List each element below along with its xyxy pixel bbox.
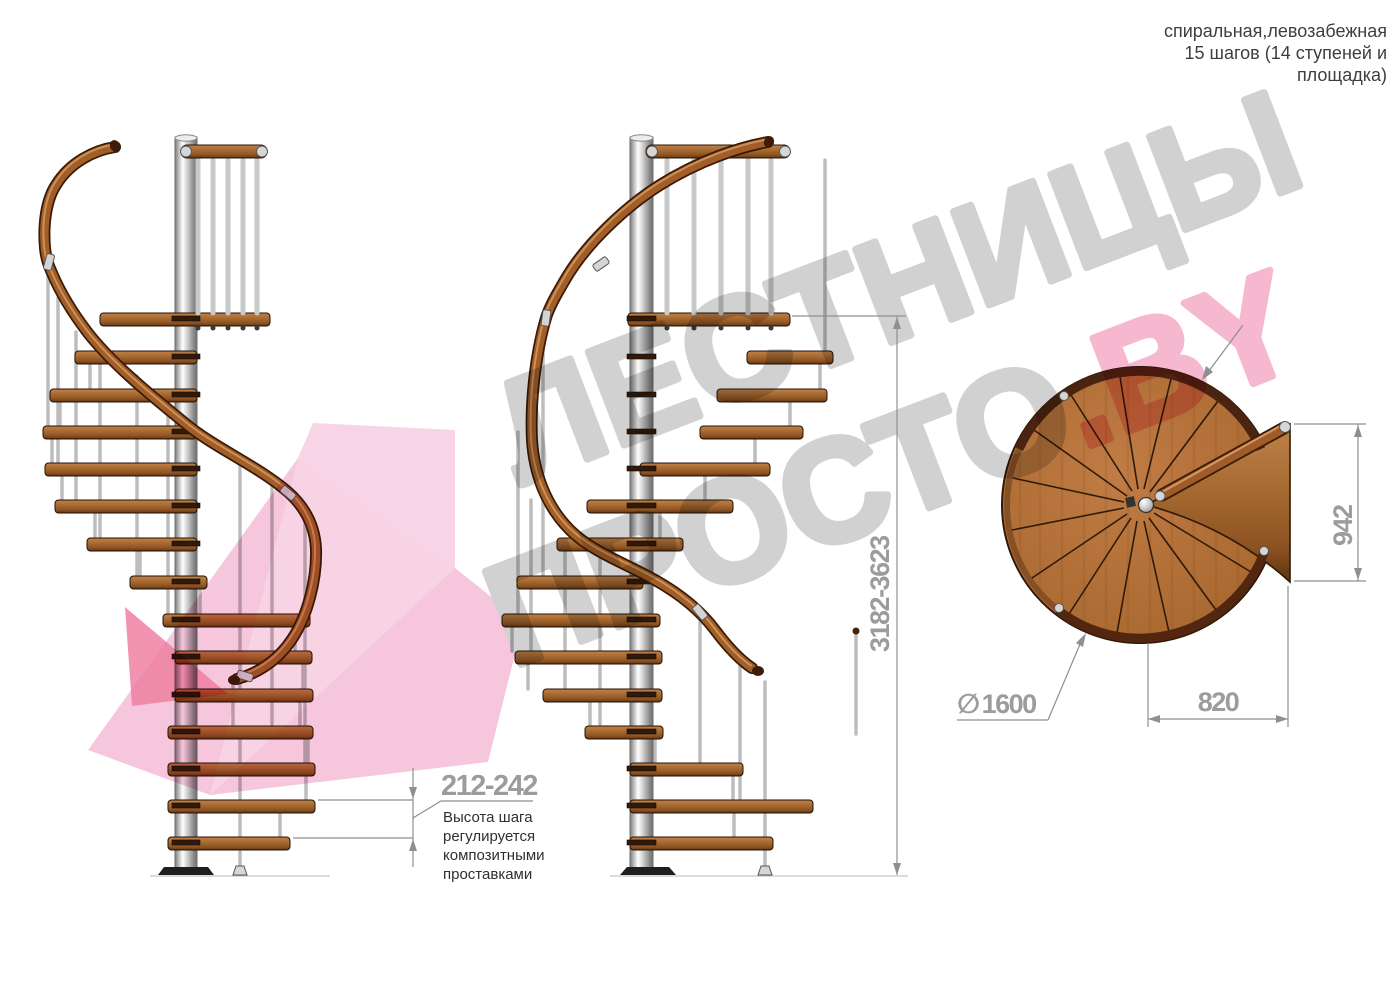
technical-drawing-page: ЛЕСТНИЦЫ ПРОСТО.BY 3182-3623 942 ∅1600	[0, 0, 1400, 1000]
arrow-left-icon	[1148, 715, 1160, 723]
title-line3: площадка)	[1164, 64, 1387, 86]
arrow-down-icon	[409, 787, 417, 799]
landing-width-value: 820	[1198, 687, 1239, 717]
arrow-right-icon	[1276, 715, 1288, 723]
arrow-up-icon	[1354, 425, 1362, 437]
title-line1: спиральная,левозабежная	[1164, 20, 1387, 42]
total-height-dimension: 3182-3623	[792, 316, 906, 875]
diameter-dimension: ∅1600	[957, 633, 1086, 720]
plan-handrail-leader	[1202, 325, 1243, 380]
arrow-down-icon	[893, 863, 901, 875]
landing-width-dimension: 820	[1148, 586, 1288, 727]
step-height-note: Высота шага регулируется композитными пр…	[443, 808, 545, 884]
dimension-annotations: 3182-3623 942 ∅1600 820	[0, 0, 1400, 1000]
landing-length-value: 942	[1328, 505, 1358, 546]
total-height-value: 3182-3623	[865, 535, 895, 652]
product-title: спиральная,левозабежная 15 шагов (14 сту…	[1164, 20, 1387, 86]
landing-length-dimension: 942	[1294, 424, 1366, 581]
leader-line	[1048, 637, 1083, 720]
arrow-icon	[1076, 633, 1086, 647]
arrow-up-icon	[409, 839, 417, 851]
arrow-down-icon	[1354, 568, 1362, 580]
diameter-label: ∅1600	[957, 689, 1036, 719]
title-line2: 15 шагов (14 ступеней и	[1164, 42, 1387, 64]
arrow-up-icon	[893, 317, 901, 329]
step-height-value: 212-242	[441, 770, 537, 803]
